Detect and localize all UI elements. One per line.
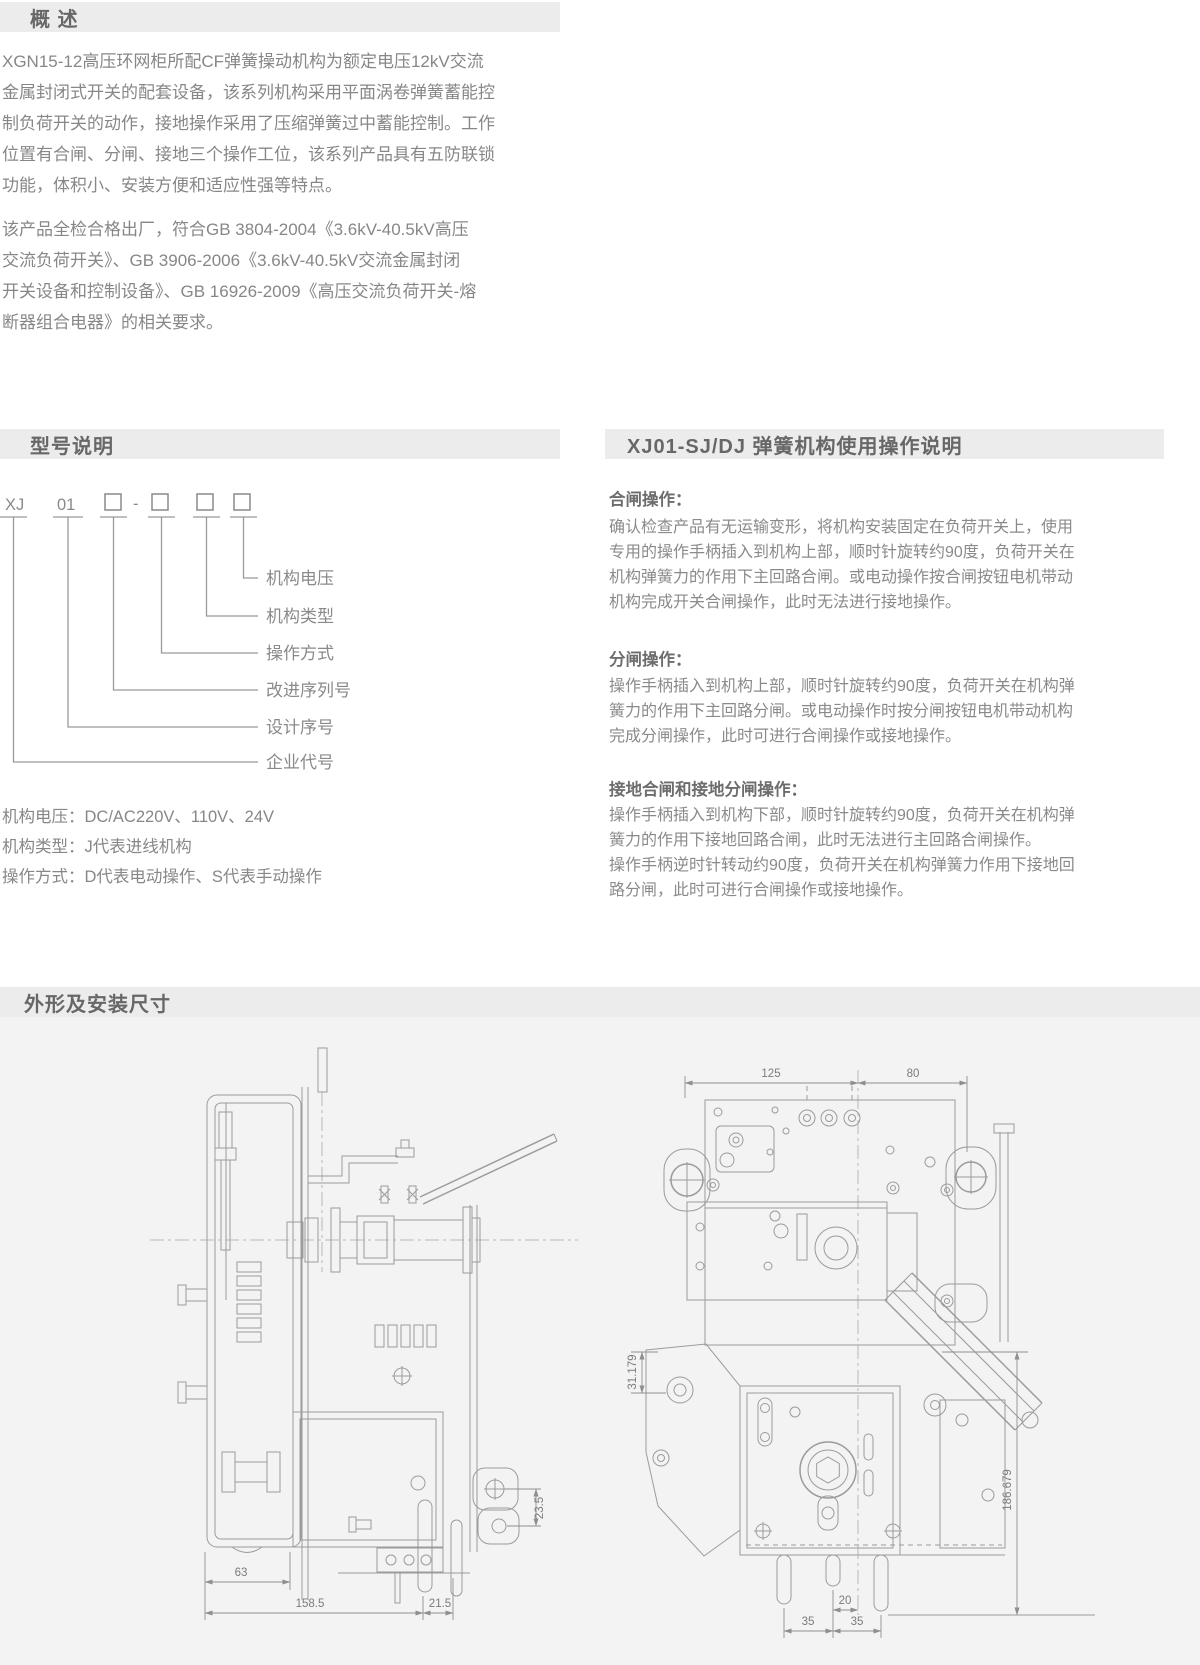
overview-paragraph-1: XGN15-12高压环网柜所配CF弹簧操动机构为额定电压12kV交流 金属封闭式… xyxy=(2,46,547,201)
model-code-hyphen: - xyxy=(133,495,139,513)
model-diagram: XJ 01 - 机构电压 机构类型 操作方式 改进序列号 设计序号 企业代号 xyxy=(0,455,560,815)
model-connectors xyxy=(14,517,259,762)
front-view-drawing: 125 80 31.179 186.679 20 35 xyxy=(627,1068,1095,1638)
dim-80: 80 xyxy=(907,1068,920,1080)
model-label-design-serial: 设计序号 xyxy=(266,718,334,737)
section-header-operation: XJ01-SJ/DJ 弹簧机构使用操作说明 xyxy=(605,429,1164,459)
model-label-voltage: 机构电压 xyxy=(266,569,334,588)
model-label-improve-serial: 改进序列号 xyxy=(266,681,351,700)
dimension-drawings: 63 158.5 21.5 23.5 xyxy=(0,1017,1200,1665)
overview-paragraph-2: 该产品全检合格出厂，符合GB 3804-2004《3.6kV-40.5kV高压 … xyxy=(2,214,547,338)
operation-block-1-body: 确认检查产品有无运输变形，将机构安装固定在负荷开关上，使用 专用的操作手柄插入到… xyxy=(609,515,1079,615)
model-label-operation-mode: 操作方式 xyxy=(266,644,334,663)
dimension-drawings-panel: 63 158.5 21.5 23.5 xyxy=(0,1017,1200,1665)
operation-block-3-body: 操作手柄插入到机构下部，顺时针旋转约90度，负荷开关在机构弹 簧力的作用下接地回… xyxy=(609,803,1079,903)
model-label-type: 机构类型 xyxy=(266,607,334,626)
operation-block-1-title: 合闸操作： xyxy=(609,486,692,510)
dimensions-title: 外形及安装尺寸 xyxy=(24,988,171,1017)
model-code-box-2 xyxy=(152,494,168,510)
model-code-box-1 xyxy=(105,494,121,510)
operation-title: XJ01-SJ/DJ 弹簧机构使用操作说明 xyxy=(627,430,963,459)
side-view-drawing: 63 158.5 21.5 23.5 xyxy=(150,1048,578,1620)
model-label-company-code: 企业代号 xyxy=(266,753,334,772)
model-code-box-3 xyxy=(197,494,213,510)
overview-title: 概 述 xyxy=(30,3,79,32)
operation-block-2-body: 操作手柄插入到机构上部，顺时针旋转约90度，负荷开关在机构弹 簧力的作用下主回路… xyxy=(609,674,1079,749)
model-code-box-4 xyxy=(234,494,250,510)
dim-21-5: 21.5 xyxy=(429,1598,451,1610)
section-header-dimensions: 外形及安装尺寸 xyxy=(0,987,1200,1017)
side-view-dimensions: 63 158.5 21.5 23.5 xyxy=(205,1489,546,1620)
operation-block-2-title: 分闸操作： xyxy=(609,646,692,670)
section-header-overview: 概 述 xyxy=(0,2,560,32)
dim-125: 125 xyxy=(761,1068,780,1080)
dim-35-left: 35 xyxy=(802,1616,815,1628)
model-code-design: 01 xyxy=(57,496,75,514)
dim-63: 63 xyxy=(235,1567,248,1579)
dim-186-679: 186.679 xyxy=(1002,1469,1014,1511)
dim-35-right: 35 xyxy=(851,1616,864,1628)
model-code-prefix: XJ xyxy=(5,496,24,514)
operation-block-3-title: 接地合闸和接地分闸操作： xyxy=(609,776,807,800)
model-notes: 机构电压：DC/AC220V、110V、24V 机构类型：J代表进线机构 操作方… xyxy=(2,802,547,892)
dim-23-5: 23.5 xyxy=(534,1497,546,1519)
dim-31-179: 31.179 xyxy=(627,1354,639,1389)
dim-158-5: 158.5 xyxy=(296,1598,325,1610)
front-view-dimensions: 125 80 31.179 186.679 20 35 xyxy=(627,1068,1028,1638)
dim-20: 20 xyxy=(839,1595,852,1607)
datasheet-page: 概 述 XGN15-12高压环网柜所配CF弹簧操动机构为额定电压12kV交流 金… xyxy=(0,0,1200,1665)
